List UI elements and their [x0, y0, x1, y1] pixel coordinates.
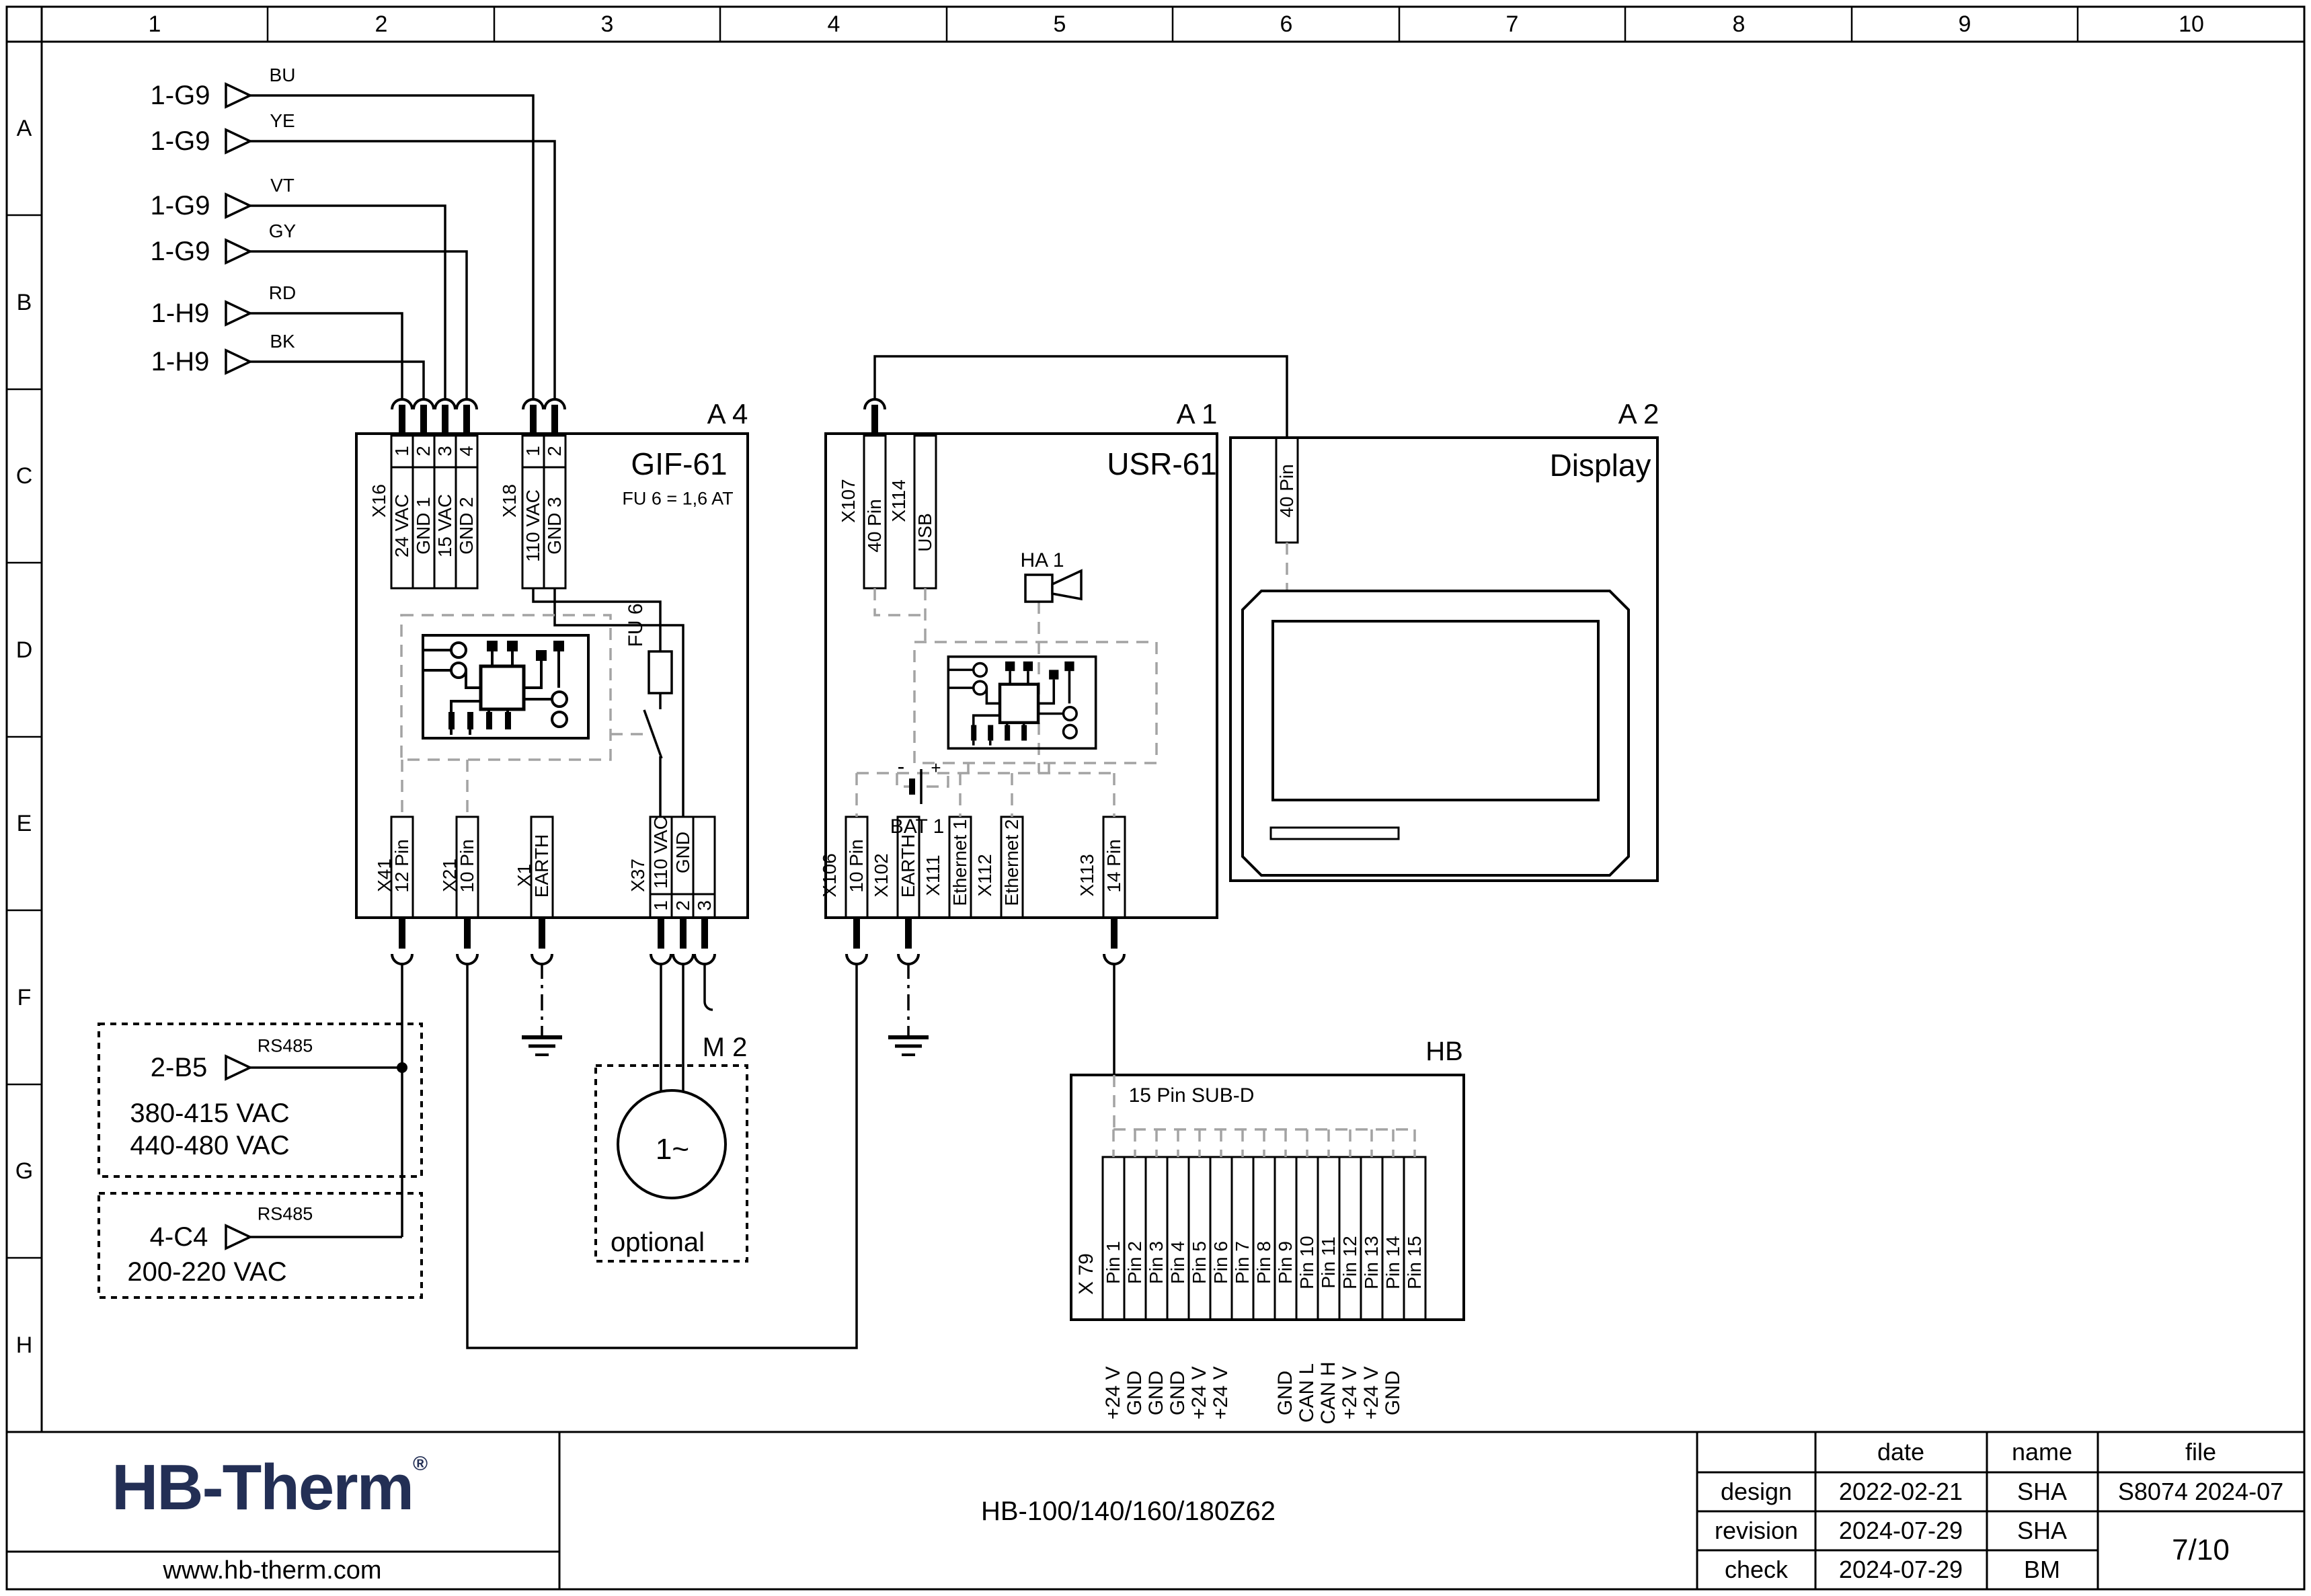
grid-col-10: 10 — [2179, 13, 2204, 36]
block-ref-a4: A 4 — [707, 400, 748, 428]
plug-icons-top — [392, 399, 885, 436]
optional-note: optional — [611, 1229, 705, 1256]
feed-voltage: 380-415 VAC — [130, 1100, 289, 1127]
hb-pin: Pin 2 — [1126, 1241, 1144, 1284]
logo-text: HB-Therm — [112, 1451, 413, 1523]
doc-title: HB-100/140/160/180Z62 — [981, 1498, 1276, 1525]
hb-pin: Pin 3 — [1147, 1241, 1166, 1284]
block-title-a4: GIF-61 — [631, 448, 727, 479]
pcb-icon — [948, 657, 1095, 748]
check-date: 2024-07-29 — [1839, 1558, 1963, 1582]
hb-header: 15 Pin SUB-D — [1129, 1086, 1255, 1106]
plug-icon — [435, 399, 455, 436]
connector-label-x79: X 79 — [1076, 1253, 1097, 1295]
hb-signal: GND — [1276, 1371, 1296, 1416]
horn-icon — [1025, 571, 1081, 602]
connector-label-x16: X16 — [370, 484, 389, 518]
pin-number: 2 — [674, 900, 693, 911]
wire-x37-3-stub — [705, 963, 713, 1010]
wire-color-label: GY — [269, 222, 296, 241]
source-ref: 1-G9 — [151, 82, 210, 109]
wire-bk — [250, 362, 424, 401]
plug-icon — [865, 399, 885, 436]
pin-signal: GND 1 — [414, 497, 433, 555]
hb-signal: GND — [1383, 1371, 1403, 1416]
pin-signal: 110 VAC — [524, 489, 543, 562]
hb-signal: GND — [1125, 1371, 1145, 1416]
pin-signal: GND 3 — [545, 497, 564, 555]
pcb-icon — [423, 635, 588, 738]
wire-gy — [250, 251, 467, 401]
hb-signal: +24 V — [1189, 1366, 1210, 1419]
connector-label-x111: X111 — [924, 854, 943, 895]
hb-pin: Pin 13 — [1362, 1236, 1381, 1289]
plug-icon — [545, 399, 565, 436]
connector-label-x106: X106 — [820, 853, 839, 897]
hb-signal: +24 V — [1340, 1366, 1360, 1419]
plug-icon — [457, 918, 477, 964]
grid-col-3: 3 — [601, 13, 614, 36]
feed-boxes — [99, 1024, 422, 1298]
drawing-frame — [7, 7, 2304, 1589]
pin-signal: 40 Pin — [1278, 464, 1296, 517]
connector-label-x107: X107 — [839, 479, 858, 522]
source-ref: 1-G9 — [151, 128, 210, 155]
plug-icons-bottom — [392, 918, 1124, 964]
pin-number: 1 — [652, 900, 670, 911]
hb-pin: Pin 14 — [1384, 1236, 1403, 1289]
connector-label-x18: X18 — [500, 484, 519, 518]
switch-blade-icon — [644, 710, 662, 758]
grid-col-1: 1 — [149, 13, 161, 36]
connector-x114 — [914, 436, 936, 588]
grid-row-a: A — [17, 117, 32, 140]
source-ref: 1-H9 — [151, 348, 210, 375]
motor-symbol: 1~ — [656, 1135, 689, 1164]
wire-color-label: RD — [269, 284, 296, 303]
table-header-file: file — [2185, 1440, 2216, 1464]
connector-label-x114: X114 — [890, 479, 908, 522]
hb-signal: GND — [1146, 1371, 1167, 1416]
fuse-icon — [649, 651, 672, 693]
revision-date: 2024-07-29 — [1839, 1519, 1963, 1543]
pin-signal: 14 Pin — [1105, 839, 1124, 892]
grid-row-d: D — [16, 639, 33, 662]
grid-col-8: 8 — [1733, 13, 1746, 36]
pin-number: 1 — [393, 446, 412, 456]
block-title-a2: Display — [1550, 450, 1651, 481]
bus-label: RS485 — [258, 1205, 313, 1224]
pin-signal: 10 Pin — [458, 839, 477, 892]
hb-signal: CAN H — [1319, 1361, 1339, 1424]
pin-signal: Ethernet 2 — [1003, 819, 1021, 906]
pin-signal: 10 Pin — [847, 839, 866, 892]
plug-icon — [673, 918, 693, 964]
pin-signal: 24 VAC — [393, 494, 412, 557]
check-name: BM — [2024, 1558, 2060, 1582]
pin-number: 3 — [436, 446, 455, 456]
fuse-label: FU 6 — [626, 603, 646, 647]
pin-signal: GND — [674, 832, 693, 873]
feed-voltage: 440-480 VAC — [130, 1132, 289, 1159]
source-wires — [250, 95, 555, 401]
revision-name: SHA — [2017, 1519, 2067, 1543]
grid-row-g: G — [15, 1160, 33, 1183]
design-date: 2022-02-21 — [1839, 1480, 1963, 1504]
battery-icon — [909, 769, 921, 804]
battery-minus: - — [898, 756, 905, 777]
pin-number: 2 — [545, 446, 564, 456]
hb-pin: Pin 7 — [1233, 1241, 1252, 1284]
grid-col-5: 5 — [1054, 13, 1066, 36]
pin-signal: EARTH — [899, 834, 918, 897]
junction-dot — [397, 1062, 407, 1073]
hb-signal: CAN L — [1297, 1363, 1317, 1423]
grid-row-f: F — [17, 986, 32, 1009]
pin-number: 2 — [414, 446, 433, 456]
battery-plus: + — [931, 759, 941, 776]
grid-col-4: 4 — [828, 13, 840, 36]
pin-signal: GND 2 — [457, 497, 476, 555]
table-header-name: name — [2012, 1440, 2072, 1464]
block-ref-hb: HB — [1425, 1038, 1463, 1065]
plug-icon — [651, 918, 671, 964]
pin-number: 1 — [524, 446, 543, 456]
bus-label: RS485 — [258, 1037, 313, 1055]
source-arrow-icons — [226, 84, 250, 373]
wire-color-label: YE — [270, 112, 295, 130]
connector-label-x37: X37 — [629, 859, 648, 892]
source-ref: 1-G9 — [151, 238, 210, 265]
hb-pin: Pin 5 — [1190, 1241, 1209, 1284]
table-header-date: date — [1877, 1440, 1924, 1464]
hb-signal: +24 V — [1211, 1366, 1231, 1419]
wire-gnd3 — [555, 588, 683, 817]
plug-icon — [898, 918, 918, 964]
plug-icon — [457, 399, 477, 436]
plug-icon — [1104, 918, 1124, 964]
hb-pin: Pin 12 — [1341, 1236, 1360, 1289]
pin-signal: EARTH — [533, 834, 551, 897]
pin-number: 4 — [457, 446, 476, 456]
wire-color-label: VT — [270, 176, 295, 195]
hb-pin: Pin 15 — [1405, 1236, 1424, 1289]
pin-signal: 15 VAC — [436, 494, 455, 557]
connector-label-x113: X113 — [1078, 854, 1097, 896]
source-ref: 1-H9 — [151, 300, 210, 327]
hb-signal: +24 V — [1362, 1366, 1382, 1419]
horn-label: HA 1 — [1020, 551, 1064, 571]
wire-color-label: BK — [270, 332, 295, 351]
block-ref-a2: A 2 — [1618, 400, 1659, 428]
grid-col-9: 9 — [1959, 13, 1971, 36]
website: www.hb-therm.com — [163, 1558, 381, 1583]
wire-rd — [250, 313, 402, 401]
schematic-page: 1 2 3 4 5 6 7 8 9 10 A B C D E F G H 1-G… — [0, 0, 2311, 1596]
hb-pin: Pin 8 — [1255, 1241, 1274, 1284]
row-label-design: design — [1721, 1480, 1792, 1504]
connector-label-x112: X112 — [976, 854, 994, 896]
file-value: S8074 2024-07 — [2118, 1480, 2283, 1504]
feed-ref: 4-C4 — [150, 1224, 208, 1250]
plug-icon — [392, 399, 412, 436]
pin-number: 3 — [695, 900, 714, 911]
hb-pin: Pin 1 — [1104, 1241, 1123, 1284]
pin-signal: 110 VAC — [652, 816, 670, 889]
wire-x107-display — [875, 356, 1287, 438]
grid-row-h: H — [16, 1334, 33, 1357]
plug-icon — [392, 918, 412, 964]
connector-label-x102: X102 — [872, 853, 891, 897]
pin-signal: USB — [916, 513, 935, 552]
motor-ref: M 2 — [703, 1034, 748, 1061]
row-label-check: check — [1725, 1558, 1788, 1582]
grid-row-b: B — [17, 291, 32, 314]
design-name: SHA — [2017, 1480, 2067, 1504]
display-icon — [1243, 591, 1629, 875]
schematic-drawing — [0, 0, 2311, 1596]
grid-col-6: 6 — [1280, 13, 1293, 36]
plug-icon — [532, 918, 552, 964]
block-title-a1: USR-61 — [1107, 448, 1217, 479]
pin-signal: 40 Pin — [865, 499, 884, 552]
page-number: 7/10 — [2172, 1535, 2230, 1565]
grid-row-c: C — [16, 465, 33, 487]
hb-pin: Pin 4 — [1169, 1241, 1187, 1284]
plug-icon — [414, 399, 434, 436]
company-logo: HB-Therm® — [112, 1454, 426, 1520]
block-ref-a1: A 1 — [1177, 400, 1218, 428]
grid-col-2: 2 — [375, 13, 388, 36]
wire-color-label: BU — [270, 66, 296, 85]
plug-icon — [847, 918, 867, 964]
pin-signal: 12 Pin — [393, 839, 412, 892]
hb-pin: Pin 6 — [1212, 1241, 1230, 1284]
grid-col-7: 7 — [1506, 13, 1519, 36]
earth-wires — [542, 963, 908, 1037]
pin-signal: Ethernet 1 — [951, 819, 970, 906]
hb-signal: +24 V — [1103, 1366, 1124, 1419]
plug-icon — [523, 399, 543, 436]
hb-pin: Pin 10 — [1298, 1236, 1317, 1289]
hb-signal: GND — [1168, 1371, 1188, 1416]
fuse-note: FU 6 = 1,6 AT — [622, 490, 733, 508]
grid-row-e: E — [17, 812, 32, 835]
feed-voltage: 200-220 VAC — [127, 1259, 286, 1285]
registered-mark: ® — [413, 1453, 426, 1475]
hb-pin: Pin 11 — [1319, 1236, 1338, 1288]
plug-icon — [695, 918, 715, 964]
hb-pin: Pin 9 — [1276, 1241, 1295, 1284]
source-ref: 1-G9 — [151, 192, 210, 219]
row-label-revision: revision — [1715, 1519, 1798, 1543]
feed-ref: 2-B5 — [151, 1054, 208, 1081]
